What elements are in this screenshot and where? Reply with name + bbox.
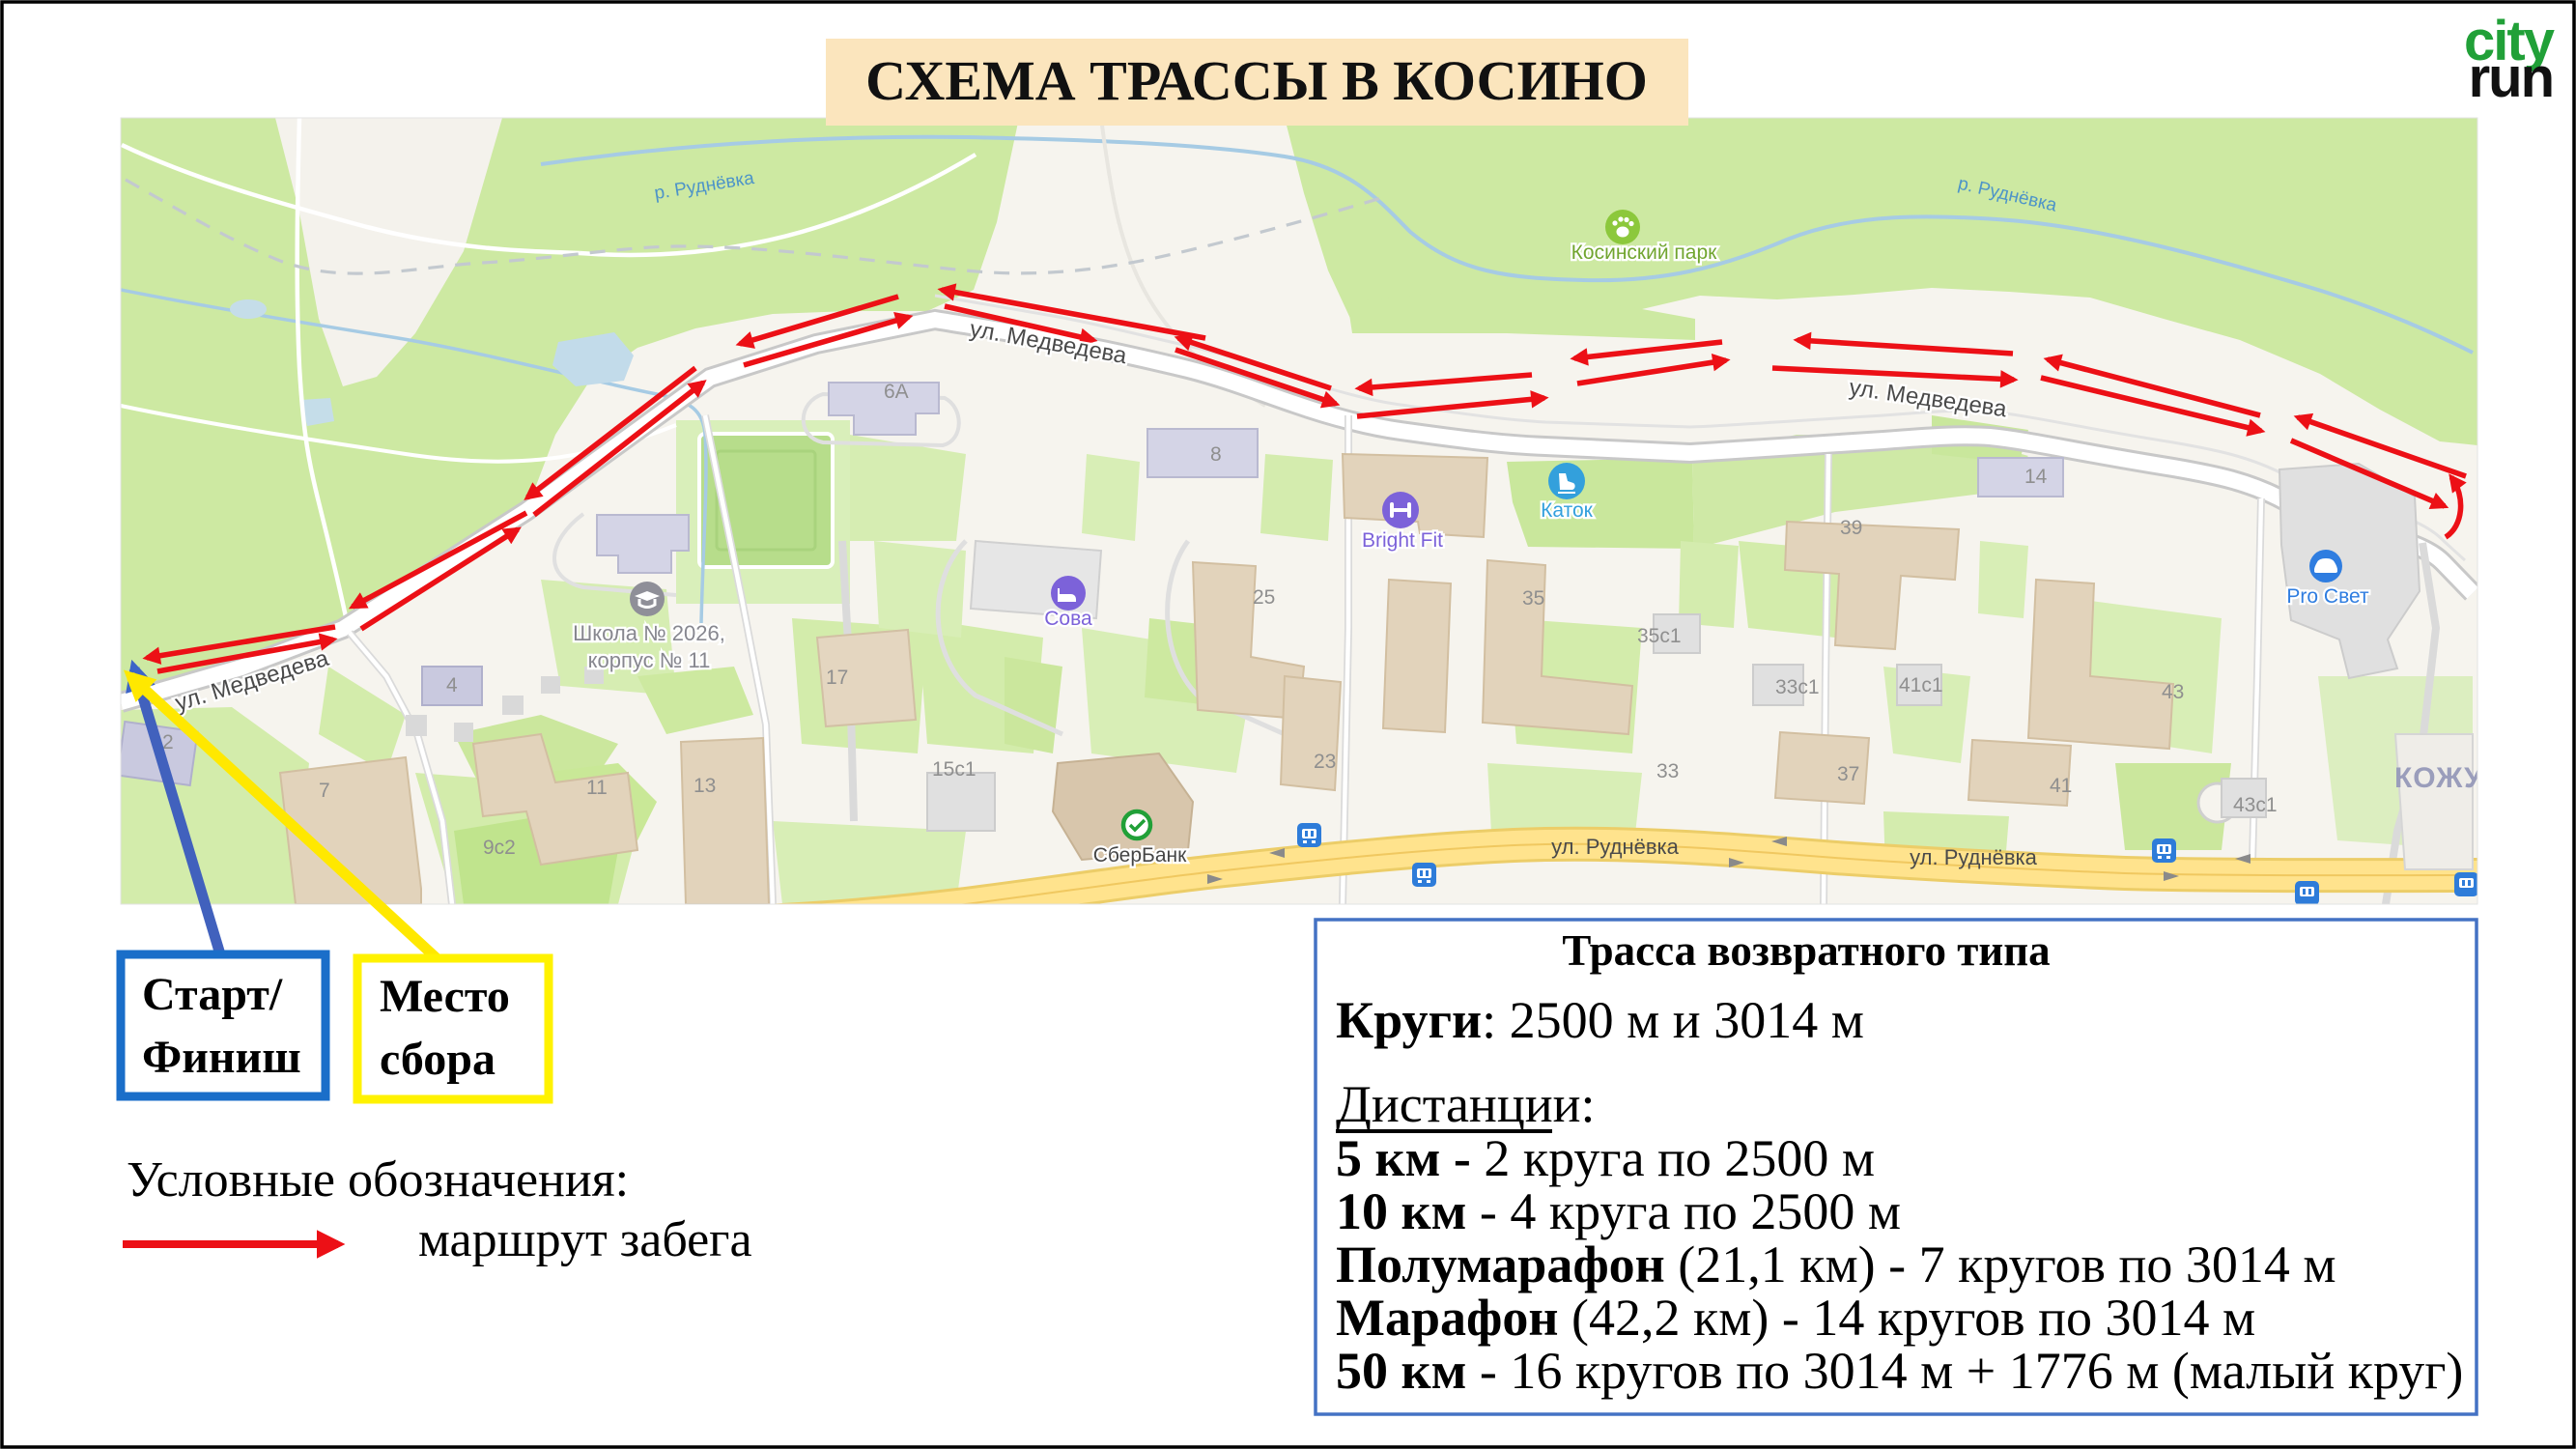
svg-text:5 км - 2 круга по 2500 м: 5 км - 2 круга по 2500 м [1336, 1129, 1875, 1187]
svg-text:7: 7 [319, 780, 330, 802]
svg-text:Условные обозначения:: Условные обозначения: [127, 1152, 629, 1207]
svg-text:6А: 6А [884, 381, 909, 403]
svg-text:Косинский парк: Косинский парк [1571, 241, 1717, 264]
svg-text:сбора: сбора [380, 1034, 495, 1085]
svg-text:35: 35 [1522, 587, 1544, 610]
svg-text:13: 13 [694, 775, 716, 797]
svg-text:9с2: 9с2 [483, 837, 516, 859]
svg-text:43с1: 43с1 [2233, 794, 2278, 816]
svg-text:23: 23 [1314, 751, 1336, 773]
svg-text:Место: Место [380, 971, 510, 1022]
svg-text:37: 37 [1837, 763, 1859, 785]
svg-text:8: 8 [1210, 443, 1222, 466]
svg-text:14: 14 [2024, 466, 2048, 488]
svg-text:4: 4 [446, 674, 458, 696]
svg-text:СберБанк: СберБанк [1093, 844, 1187, 867]
svg-text:Сова: Сова [1044, 608, 1092, 630]
svg-text:ул. Руднёвка: ул. Руднёвка [1551, 835, 1680, 859]
svg-text:Школа № 2026,: Школа № 2026, [573, 621, 725, 645]
svg-text:Круги: 2500 м и 3014 м: Круги: 2500 м и 3014 м [1336, 991, 1864, 1049]
svg-text:39: 39 [1840, 517, 1862, 539]
svg-text:50 км - 16 кругов по 3014 м +: 50 км - 16 кругов по 3014 м + 1776 м (ма… [1336, 1342, 2463, 1400]
svg-text:run: run [2469, 46, 2553, 109]
svg-text:маршрут забега: маршрут забега [418, 1212, 752, 1267]
svg-text:Старт/: Старт/ [142, 969, 283, 1020]
svg-text:35с1: 35с1 [1637, 625, 1682, 647]
svg-text:33: 33 [1656, 760, 1679, 782]
svg-text:Полумарафон (21,1 км) - 7 круг: Полумарафон (21,1 км) - 7 кругов по 3014… [1336, 1236, 2336, 1293]
svg-text:Каток: Каток [1541, 499, 1594, 522]
svg-text:Финиш: Финиш [142, 1032, 301, 1083]
svg-text:СХЕМА ТРАССЫ В КОСИНО: СХЕМА ТРАССЫ В КОСИНО [865, 49, 1648, 112]
svg-text:15с1: 15с1 [932, 758, 977, 781]
svg-text:17: 17 [826, 667, 848, 689]
svg-text:ул. Руднёвка: ул. Руднёвка [1910, 845, 2038, 869]
svg-text:КОЖУ: КОЖУ [2394, 762, 2483, 794]
svg-text:Pro Свет: Pro Свет [2286, 585, 2369, 608]
svg-text:41с1: 41с1 [1899, 674, 1943, 696]
svg-text:10 км - 4 круга по 2500 м: 10 км - 4 круга по 2500 м [1336, 1182, 1901, 1240]
svg-text:41: 41 [2050, 775, 2072, 797]
svg-text:33с1: 33с1 [1775, 676, 1820, 698]
svg-text:11: 11 [586, 777, 608, 799]
svg-text:корпус № 11: корпус № 11 [588, 648, 711, 672]
svg-text:Трасса возвратного типа: Трасса возвратного типа [1562, 926, 2050, 975]
svg-text:25: 25 [1253, 586, 1275, 609]
svg-text:Марафон (42,2 км) - 14 кругов: Марафон (42,2 км) - 14 кругов по 3014 м [1336, 1289, 2255, 1347]
svg-text:Дистанции:: Дистанции: [1336, 1075, 1596, 1133]
svg-text:Bright Fit: Bright Fit [1362, 529, 1443, 552]
svg-text:43: 43 [2162, 681, 2184, 703]
